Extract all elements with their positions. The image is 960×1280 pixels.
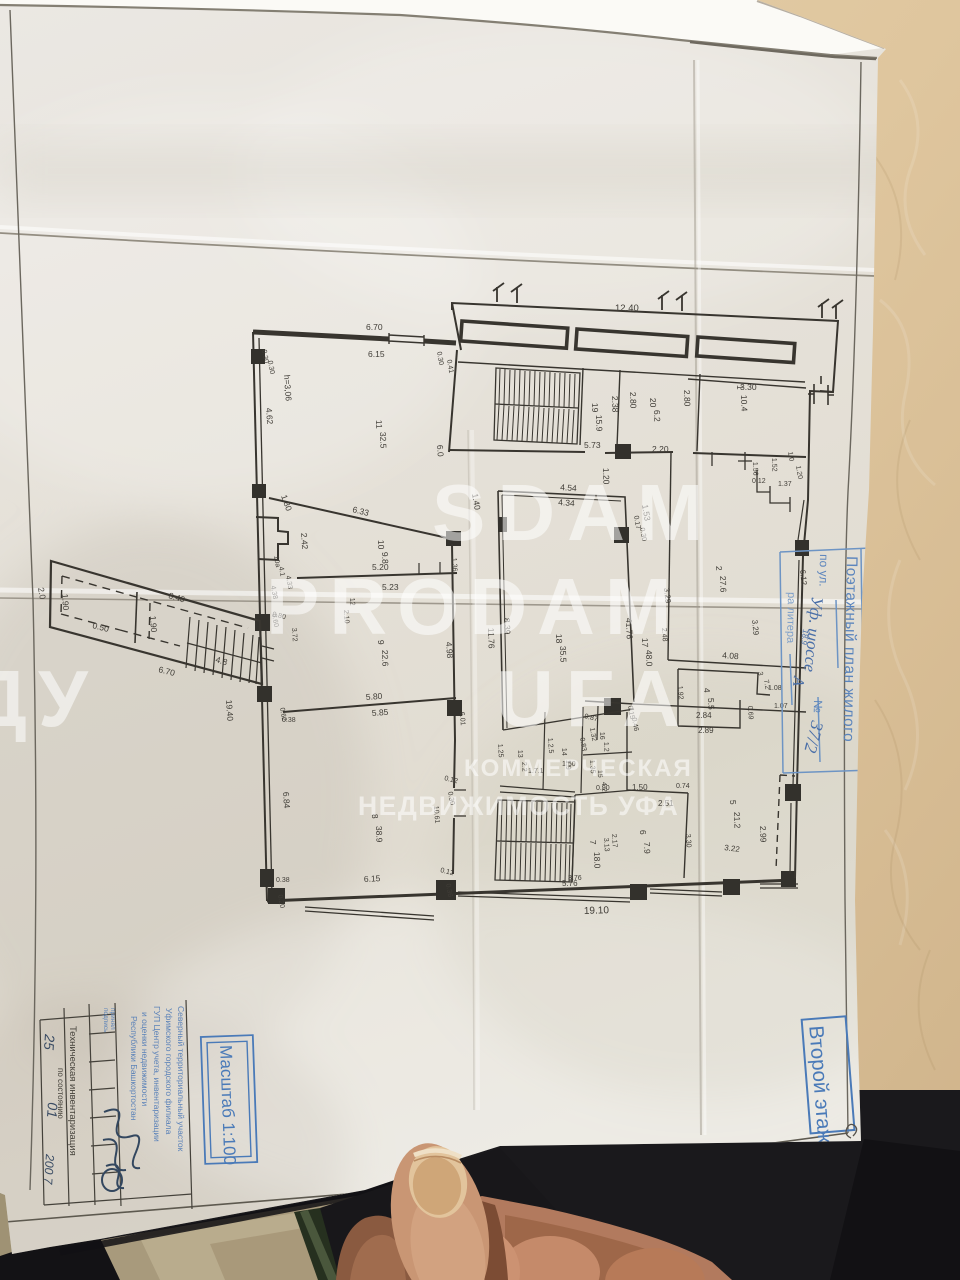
svg-text:21.2: 21.2 (732, 812, 743, 829)
svg-text:1.52: 1.52 (770, 458, 777, 472)
svg-text:Северный территориальный участ: Северный территориальный участок (176, 1006, 186, 1152)
svg-text:6.84: 6.84 (281, 791, 292, 808)
svg-text:6.2: 6.2 (652, 410, 662, 422)
svg-text:32.5: 32.5 (378, 432, 389, 449)
svg-text:6.12: 6.12 (798, 569, 809, 586)
svg-text:и оценки недвижимости: и оценки недвижимости (140, 1012, 150, 1106)
svg-text:5: 5 (728, 800, 738, 805)
svg-text:20: 20 (648, 398, 658, 408)
svg-text:200 7: 200 7 (41, 1153, 57, 1186)
svg-text:Уфимского городского филиала: Уфимского городского филиала (164, 1008, 174, 1135)
svg-text:6.01: 6.01 (458, 712, 466, 726)
svg-text:НЕДВИЖИМОСТЬ УФА: НЕДВИЖИМОСТЬ УФА (358, 791, 679, 821)
svg-text:ГУП Центр учета, инвентаризаци: ГУП Центр учета, инвентаризации (152, 1006, 162, 1142)
svg-text:2.89: 2.89 (698, 726, 714, 735)
svg-text:2.38: 2.38 (610, 396, 621, 413)
svg-text:PRODAM: PRODAM (266, 562, 682, 651)
svg-text:4.62: 4.62 (264, 407, 275, 424)
svg-text:10: 10 (376, 540, 386, 550)
svg-text:19: 19 (590, 403, 600, 413)
svg-text:10.4: 10.4 (739, 395, 750, 412)
svg-text:Техническая инвентаризация: Техническая инвентаризация (67, 1026, 78, 1156)
svg-text:2: 2 (714, 566, 724, 571)
svg-text:22.6: 22.6 (380, 650, 391, 667)
svg-text:подпись: подпись (102, 1008, 109, 1033)
svg-text:Поэтажный план жилого: Поэтажный план жилого (840, 556, 860, 742)
svg-text:3.30: 3.30 (684, 834, 692, 848)
svg-text:6.0: 6.0 (435, 444, 446, 457)
svg-text:18.9: 18.9 (799, 629, 810, 646)
svg-text:0.38: 0.38 (282, 717, 296, 724)
svg-text:3.29: 3.29 (750, 619, 761, 636)
svg-text:2.0: 2.0 (36, 587, 48, 601)
svg-text:КОММЕРЧЕСКАЯ: КОММЕРЧЕСКАЯ (464, 755, 693, 782)
svg-text:№: № (811, 700, 825, 713)
svg-text:1.2: 1.2 (602, 742, 609, 752)
svg-text:принял: принял (109, 1008, 116, 1030)
svg-text:Республики Башкортостан: Республики Башкортостан (129, 1016, 139, 1121)
svg-text:2.20: 2.20 (652, 444, 669, 454)
svg-text:38.9: 38.9 (374, 826, 385, 843)
svg-text:0.74: 0.74 (676, 783, 690, 790)
svg-text:4: 4 (702, 688, 712, 693)
svg-text:18.0: 18.0 (592, 852, 603, 869)
svg-text:7: 7 (588, 840, 598, 845)
svg-text:2.17: 2.17 (610, 834, 618, 848)
svg-text:0.12: 0.12 (752, 478, 766, 485)
svg-text:25: 25 (41, 1033, 58, 1051)
svg-text:1.37: 1.37 (778, 481, 792, 488)
svg-text:M: M (0, 562, 15, 651)
svg-text:1.56: 1.56 (751, 462, 758, 476)
svg-text:h=3,06: h=3,06 (282, 374, 294, 401)
svg-text:SDAM: SDAM (432, 468, 716, 557)
svg-text:5.5: 5.5 (706, 698, 716, 710)
svg-text:3.13: 3.13 (602, 838, 610, 852)
svg-text:UFA: UFA (496, 654, 692, 743)
svg-text:2.42: 2.42 (299, 532, 310, 549)
svg-text:11: 11 (374, 420, 384, 429)
svg-text:ДУ: ДУ (0, 654, 98, 743)
svg-text:2.99: 2.99 (758, 826, 769, 843)
svg-text:А: А (789, 675, 807, 688)
svg-text:12.40: 12.40 (615, 303, 639, 314)
svg-text:5.80: 5.80 (365, 691, 382, 702)
svg-text:7.9: 7.9 (642, 842, 652, 854)
svg-text:ра литера: ра литера (784, 592, 797, 644)
svg-text:6.70: 6.70 (366, 322, 383, 332)
svg-text:6.15: 6.15 (364, 873, 381, 884)
svg-text:0.69: 0.69 (746, 706, 754, 720)
svg-text:2.84: 2.84 (696, 711, 712, 720)
svg-text:2.80: 2.80 (682, 390, 693, 407)
svg-text:1.08: 1.08 (768, 685, 782, 692)
svg-text:01: 01 (44, 1102, 61, 1119)
svg-text:1.90: 1.90 (148, 615, 159, 632)
svg-text:15.9: 15.9 (594, 415, 605, 432)
svg-text:1: 1 (735, 385, 745, 390)
svg-text:по ул.: по ул. (816, 554, 831, 587)
svg-text:4.08: 4.08 (722, 650, 739, 661)
svg-text:6.15: 6.15 (368, 349, 385, 359)
svg-text:5.73: 5.73 (584, 440, 601, 450)
svg-text:2.80: 2.80 (628, 392, 639, 409)
svg-text:6: 6 (638, 830, 648, 835)
svg-text:19.40: 19.40 (224, 699, 235, 721)
svg-text:3.76: 3.76 (568, 875, 582, 882)
svg-text:5.85: 5.85 (371, 707, 388, 718)
svg-text:0.38: 0.38 (276, 877, 290, 884)
svg-text:1.90: 1.90 (60, 593, 71, 610)
svg-text:19.10: 19.10 (584, 905, 610, 917)
svg-text:1.07: 1.07 (774, 703, 788, 710)
svg-text:27.6: 27.6 (718, 576, 729, 593)
